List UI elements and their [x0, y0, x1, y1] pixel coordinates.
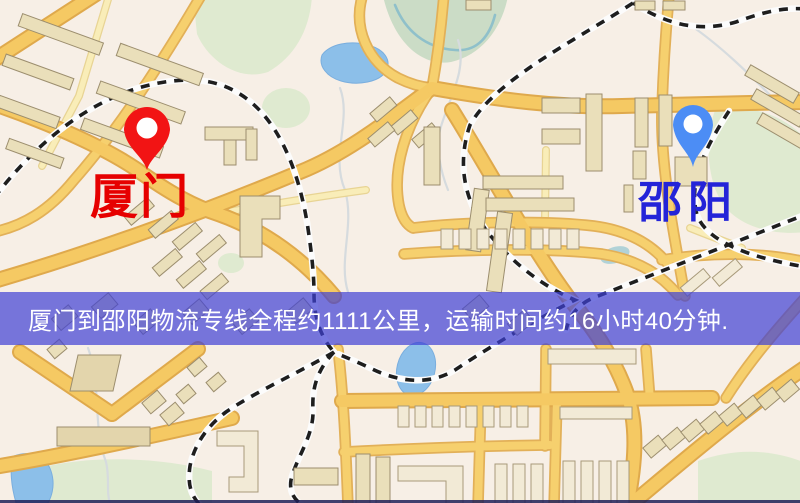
- map-screenshot: 厦门 邵阳 厦门到邵阳物流专线全程约1111公里，运输时间约16小时40分钟.: [0, 0, 800, 503]
- route-info-banner: 厦门到邵阳物流专线全程约1111公里，运输时间约16小时40分钟.: [0, 292, 800, 345]
- destination-pin-shape: [673, 105, 713, 167]
- map-canvas: [0, 0, 800, 503]
- origin-map-pin[interactable]: [118, 102, 176, 172]
- destination-pin-hole: [684, 115, 703, 134]
- origin-city-label: 厦门: [90, 174, 190, 222]
- destination-map-pin[interactable]: [668, 100, 718, 170]
- route-info-text: 厦门到邵阳物流专线全程约1111公里，运输时间约16小时40分钟.: [28, 292, 729, 345]
- destination-city-label: 邵阳: [638, 181, 738, 225]
- origin-pin-hole: [137, 118, 158, 139]
